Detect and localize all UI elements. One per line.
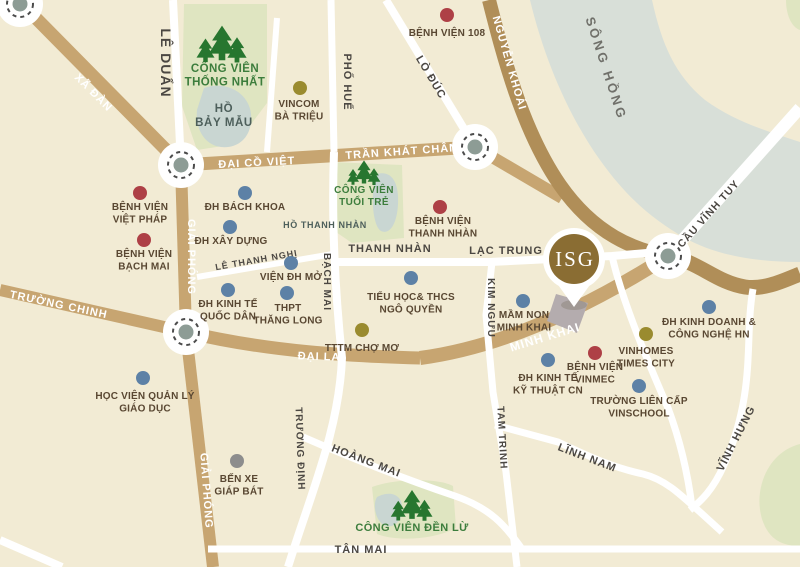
poi-label: ĐH BÁCH KHOA xyxy=(205,200,286,213)
isg-marker-label: ISG xyxy=(555,247,595,271)
poi-dot-tttm-cho-mo[interactable] xyxy=(355,323,369,337)
poi-label: VINHOMESTIMES CITY xyxy=(617,346,675,370)
cong-vien-den-lu-label: CÔNG VIÊN ĐỀN LỪ xyxy=(355,521,469,534)
street-label: LẠC TRUNG xyxy=(469,245,543,257)
poi-dot-vincom-ba-trieu[interactable] xyxy=(293,81,307,95)
poi-label: BỆNH VIỆNVIỆT PHÁP xyxy=(112,200,168,226)
poi-dot-dh-kinh-te-ky-thuat-cn[interactable] xyxy=(541,353,555,367)
street-label: GIẢI PHÓNG xyxy=(185,219,198,295)
poi-dot-benh-vien-108[interactable] xyxy=(440,8,454,22)
poi-label: ĐH KINH DOANH &CÔNG NGHỆ HN xyxy=(662,317,756,341)
poi-label: BẾN XEGIÁP BÁT xyxy=(214,472,263,498)
street-label: BẠCH MAI xyxy=(321,253,332,311)
street-label: LÊ DUẨN xyxy=(158,28,175,97)
poi-dot-benh-vien-bach-mai[interactable] xyxy=(137,233,151,247)
hanoi-location-map: XÃ ĐÀNĐẠI CỒ VIỆTTRẦN KHÁT CHÂNNGUYỄN KH… xyxy=(0,0,800,567)
poi-label: VINCOMBÀ TRIỆU xyxy=(275,99,324,123)
poi-dot-benh-vien-thanh-nhan[interactable] xyxy=(433,200,447,214)
road-pho-hue xyxy=(331,0,334,152)
street-label: PHỐ HUẾ xyxy=(341,53,355,110)
poi-dot-vinhomes-times-city[interactable] xyxy=(639,327,653,341)
street-label: KIM NGƯU xyxy=(485,278,496,338)
poi-dot-dh-xay-dung[interactable] xyxy=(223,220,237,234)
poi-label: ĐH KINH TẾKỸ THUẬT CN xyxy=(513,371,583,397)
ho-thanh-nhan-label: HỒ THANH NHÀN xyxy=(283,219,367,230)
poi-dot-mam-non-minh-khai[interactable] xyxy=(516,294,530,308)
roundabout-tran-khat-chan xyxy=(452,124,498,170)
poi-dot-dh-bach-khoa[interactable] xyxy=(238,186,252,200)
poi-label: VIỆN ĐH MỞ xyxy=(260,270,322,283)
street-label: THANH NHÀN xyxy=(348,242,431,255)
roundabout-dai-co-viet xyxy=(158,142,204,188)
poi-dot-truong-lien-cap-vinschool[interactable] xyxy=(632,379,646,393)
poi-label: ĐH XÂY DỰNG xyxy=(194,234,267,247)
poi-dot-benh-vien-viet-phap[interactable] xyxy=(133,186,147,200)
poi-label: TIỂU HỌC& THCSNGÔ QUYỀN xyxy=(367,290,455,316)
poi-dot-hoc-vien-quan-ly-giao-duc[interactable] xyxy=(136,371,150,385)
poi-label: MẦM NONMINH KHAI xyxy=(497,308,552,334)
poi-dot-vien-dh-mo[interactable] xyxy=(284,256,298,270)
cong-vien-tuoi-tre-label: CÔNG VIÊNTUỔI TRẺ xyxy=(334,183,394,208)
poi-dot-dh-kinh-doanh-cong-nghe-hn[interactable] xyxy=(702,300,716,314)
poi-label: BỆNH VIỆNBẠCH MAI xyxy=(116,247,172,273)
poi-dot-benh-vien-vinmec[interactable] xyxy=(588,346,602,360)
poi-label: TTTM CHỢ MƠ xyxy=(325,343,400,354)
poi-label: ĐH KINH TẾQUỐC DÂN xyxy=(198,297,257,323)
poi-dot-tieu-hoc-thcs-ngo-quyen[interactable] xyxy=(404,271,418,285)
poi-label: BỆNH VIỆN 108 xyxy=(409,26,486,39)
street-label: TÂN MAI xyxy=(335,543,388,556)
poi-dot-ben-xe-giap-bat[interactable] xyxy=(230,454,244,468)
map-stage: XÃ ĐÀNĐẠI CỒ VIỆTTRẦN KHÁT CHÂNNGUYỄN KH… xyxy=(0,0,800,567)
poi-dot-thpt-thang-long[interactable] xyxy=(280,286,294,300)
poi-label: BỆNH VIỆNTHANH NHÀN xyxy=(409,214,478,240)
poi-dot-dh-kinh-te-quoc-dan[interactable] xyxy=(221,283,235,297)
